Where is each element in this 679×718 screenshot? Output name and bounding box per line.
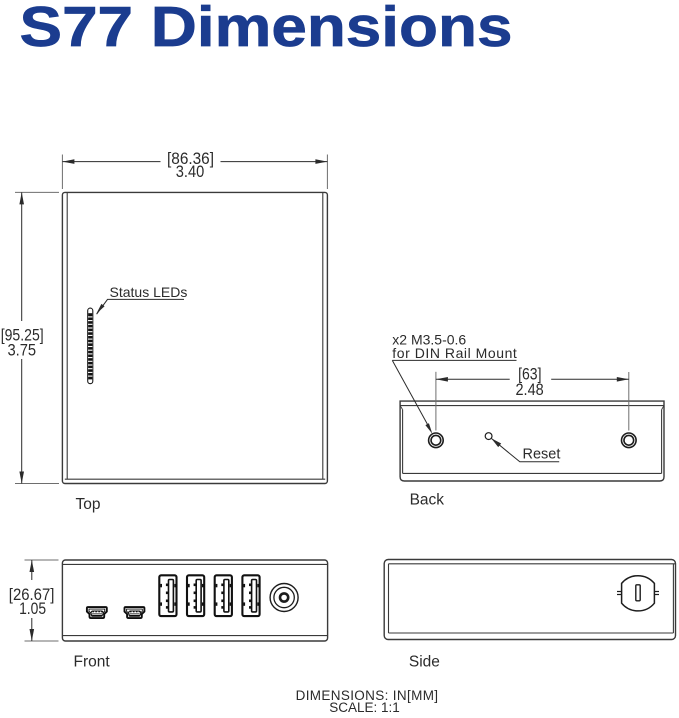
svg-text:for DIN Rail Mount: for DIN Rail Mount	[392, 345, 517, 361]
svg-text:2.48: 2.48	[516, 380, 544, 399]
svg-text:S77 Dimensions: S77 Dimensions	[20, 0, 513, 59]
svg-text:Top: Top	[76, 496, 101, 513]
svg-text:Status LEDs: Status LEDs	[110, 284, 188, 300]
svg-text:SCALE: 1:1: SCALE: 1:1	[329, 700, 400, 715]
svg-text:Back: Back	[410, 492, 445, 509]
svg-text:3.40: 3.40	[176, 162, 205, 181]
svg-text:Reset: Reset	[523, 446, 561, 462]
svg-text:3.75: 3.75	[7, 341, 36, 360]
svg-text:1.05: 1.05	[19, 599, 46, 618]
svg-text:Side: Side	[409, 654, 440, 671]
svg-text:Front: Front	[74, 654, 111, 671]
